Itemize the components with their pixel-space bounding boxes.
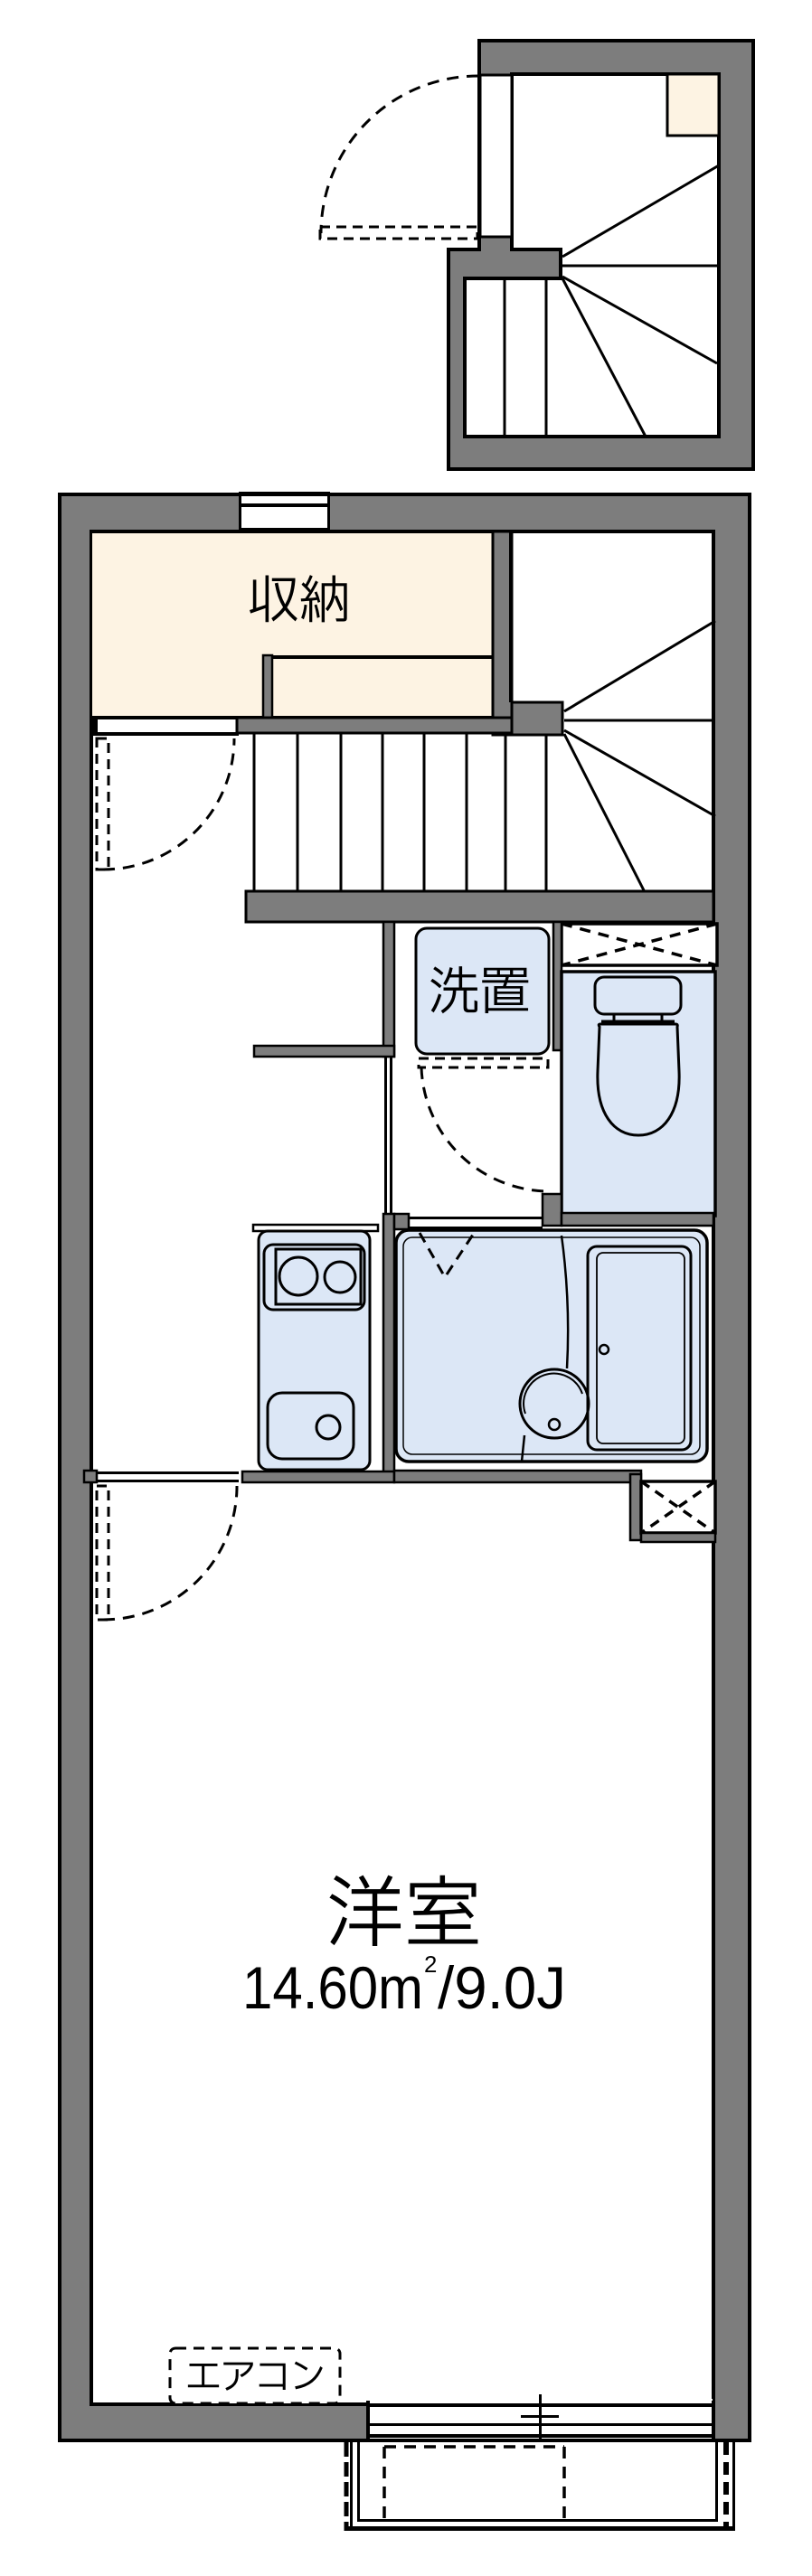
svg-text:14.60m: 14.60m [242, 1954, 423, 2021]
svg-text:/9.0J: /9.0J [438, 1954, 566, 2021]
